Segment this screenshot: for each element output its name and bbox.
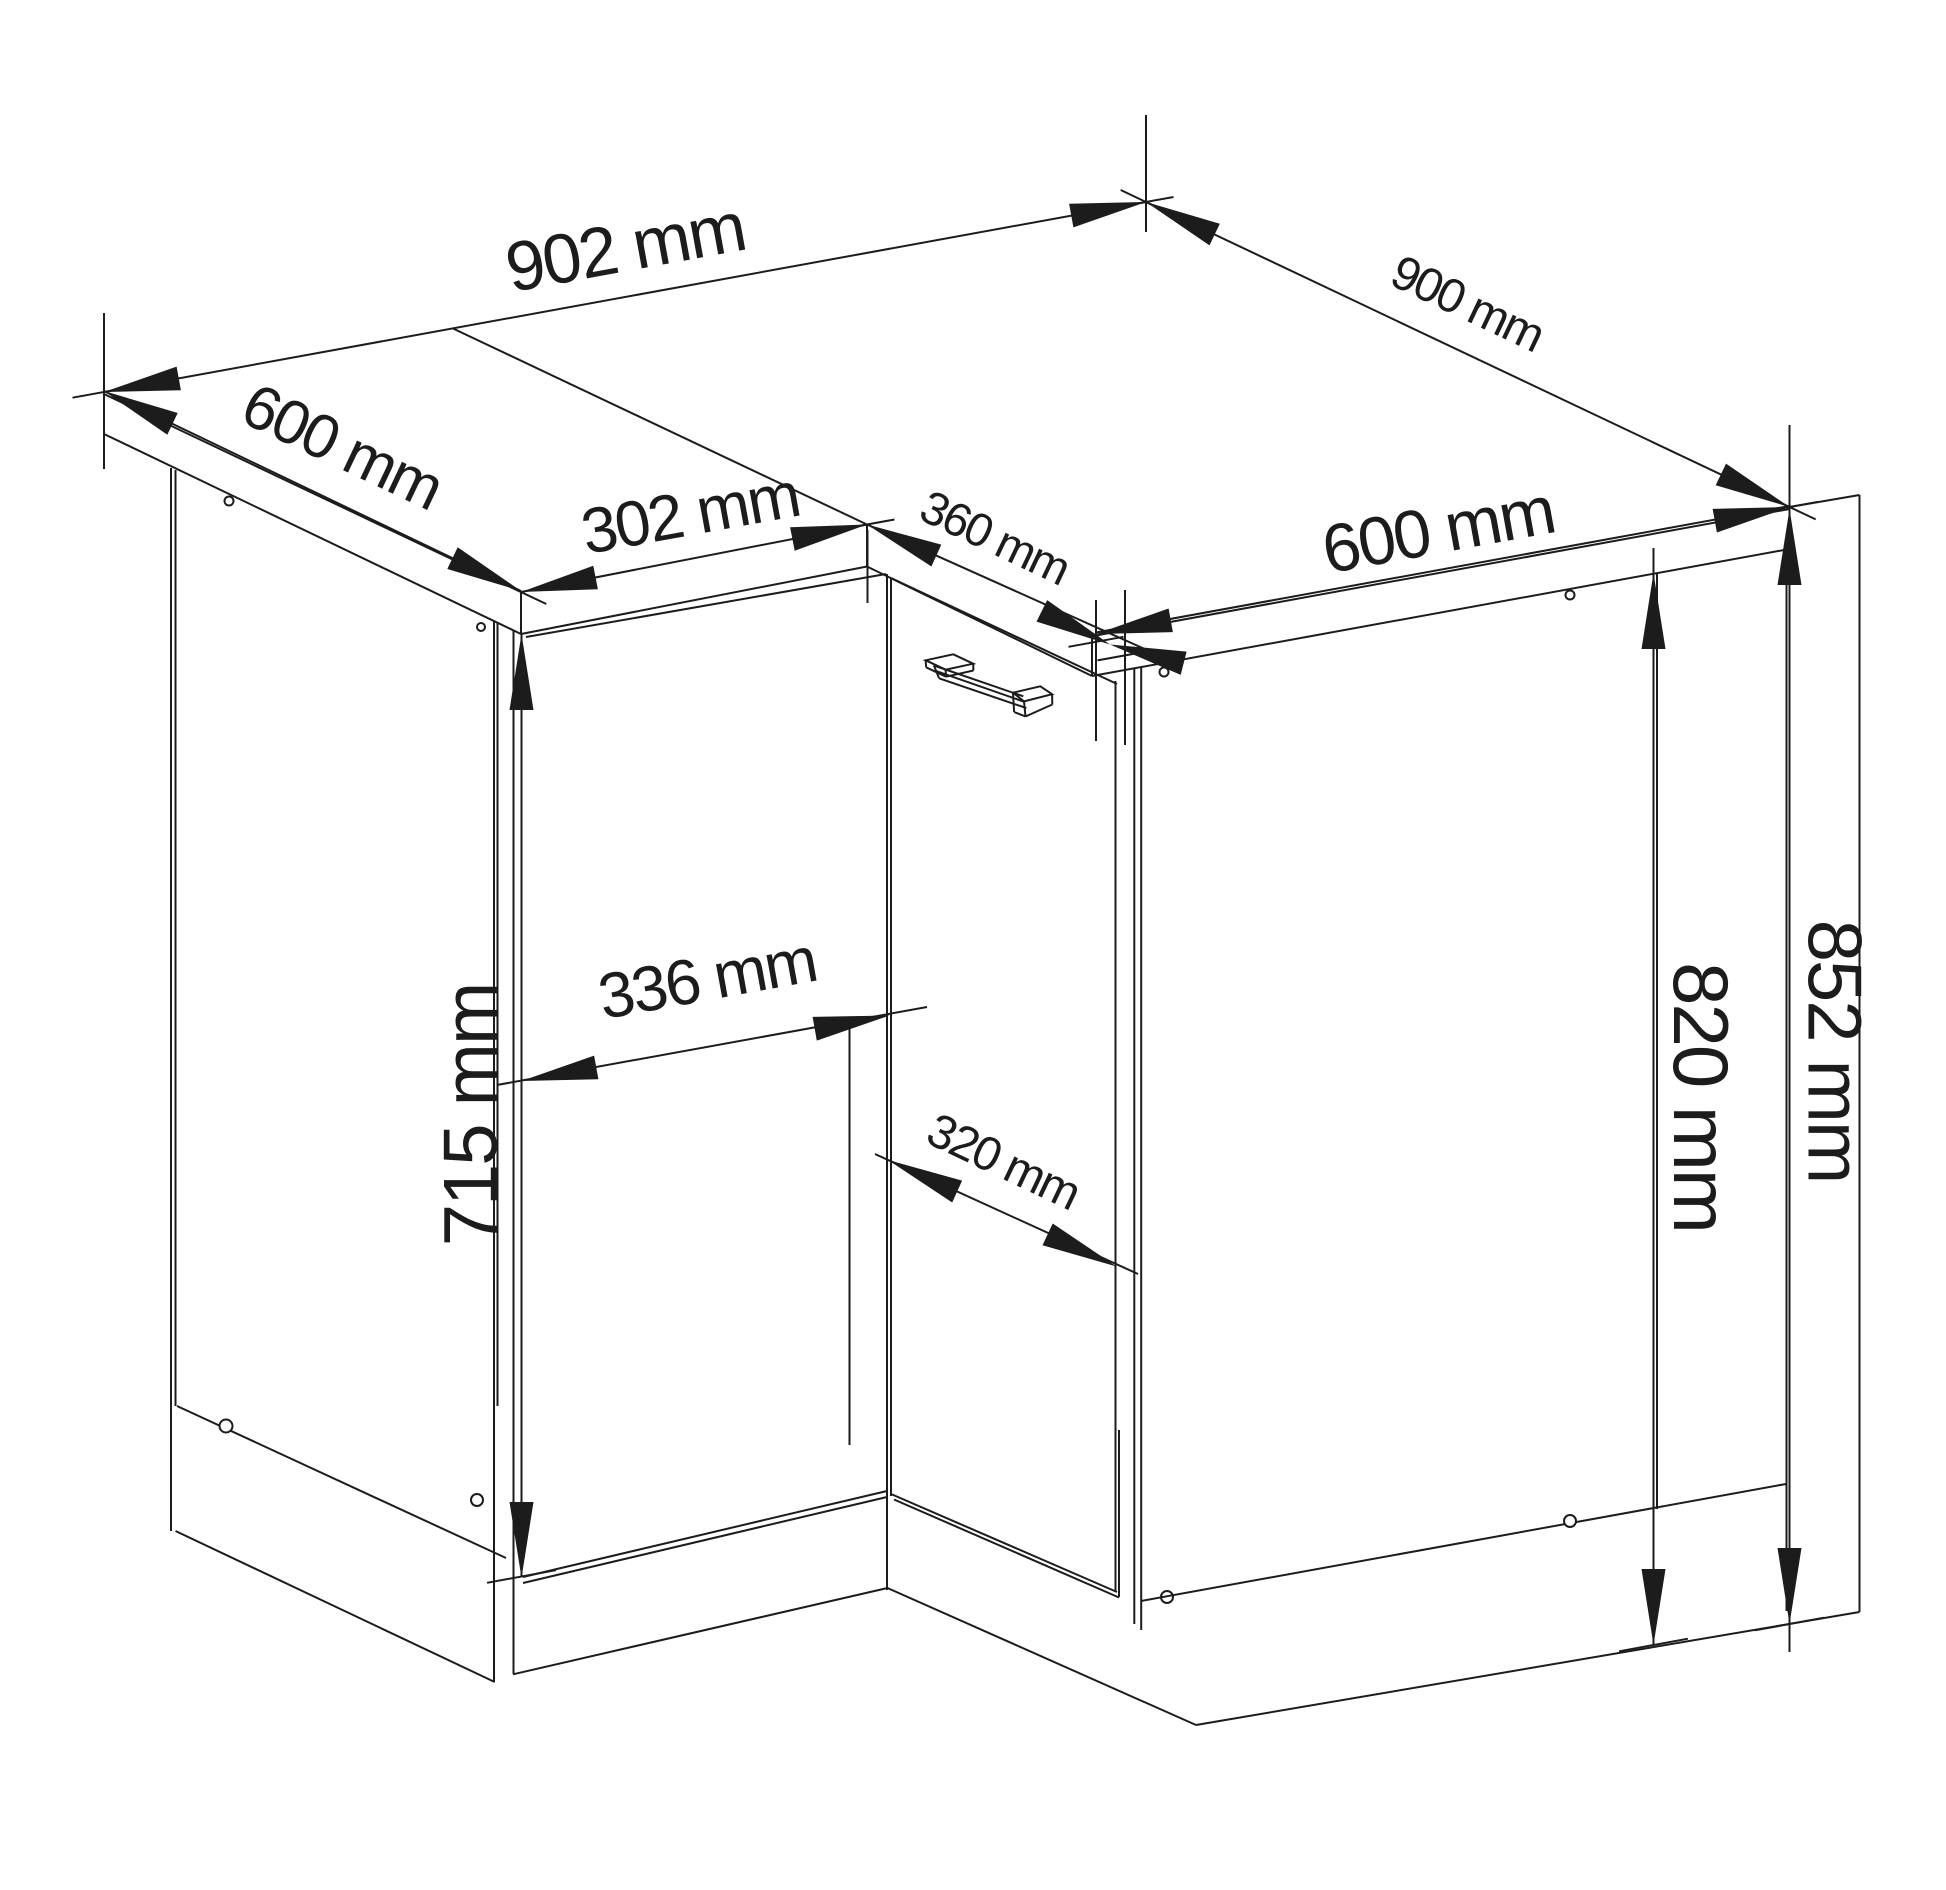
svg-text:820 mm: 820 mm xyxy=(1657,962,1745,1232)
svg-text:852 mm: 852 mm xyxy=(1792,920,1877,1183)
svg-text:715 mm: 715 mm xyxy=(429,984,514,1247)
